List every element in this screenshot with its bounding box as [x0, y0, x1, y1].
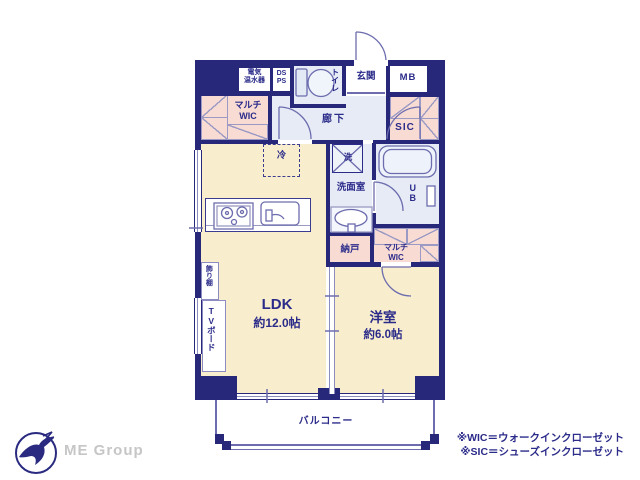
ps-line: PS [277, 78, 286, 85]
refrigerator-label: 冷 [263, 150, 300, 161]
ds-ps-label: DS PS [273, 70, 290, 87]
water-heater-line2: 温水器 [244, 77, 265, 84]
display-shelf-label: 飾り棚 [204, 265, 212, 286]
legend-notes: ※WIC＝ウォークインクローゼット ※SIC＝シューズインクローゼット [457, 431, 624, 459]
me-group-logo [12, 428, 60, 476]
toilet-icon [296, 69, 334, 97]
storage-label: 納戸 [330, 244, 370, 255]
legend-note-sic: ※SIC＝シューズインクローゼット [457, 445, 624, 459]
stove-icon [214, 203, 253, 229]
shoes-closet-label: SIC [388, 122, 422, 134]
western-room-label: 洋室 約6.0帖 [333, 310, 433, 343]
upper-wic-line2: WIC [239, 111, 257, 121]
upper-wic-label: マルチ WIC [228, 100, 268, 122]
bedroom-door-arc [382, 267, 411, 296]
water-heater-line1: 電気 [248, 69, 262, 76]
lower-wic-label: マルチ WIC [375, 243, 417, 262]
legend-note-wic: ※WIC＝ウォークインクローゼット [457, 431, 624, 445]
western-room-area: 約6.0帖 [364, 329, 403, 341]
western-room-name: 洋室 [370, 310, 397, 325]
fixtures-overlay [0, 0, 640, 480]
brand-text: ME Group [64, 442, 144, 459]
ldk-name: LDK [262, 296, 293, 313]
balcony-label: バルコニー [266, 416, 386, 428]
bathtub-icon [379, 146, 436, 177]
washroom-label: 洗面室 [330, 182, 372, 193]
bird-icon [19, 437, 54, 465]
entrance-door-arc [356, 32, 386, 60]
lower-wic-line2: WIC [388, 253, 404, 262]
entrance-label: 玄関 [346, 71, 386, 82]
vanity-sink-icon [331, 207, 372, 232]
washing-machine-label: 洗 [338, 152, 358, 162]
kitchen-sink-icon [261, 202, 299, 225]
ub-sink-icon [427, 186, 435, 206]
toilet-label: トイレ [330, 68, 340, 92]
floor-plan: 電気 温水器 DS PS トイレ 玄関 MB マルチ WIC 廊下 SIC 冷 … [0, 0, 640, 480]
lower-wic-line1: マルチ [384, 243, 408, 252]
logo-accent-stroke [43, 432, 54, 439]
tv-board-label: TVボード [206, 306, 216, 352]
upper-wic-line1: マルチ [234, 100, 261, 110]
ds-line: DS [277, 70, 287, 77]
hallway-label: 廊下 [306, 114, 362, 126]
meter-box-label: MB [390, 72, 426, 83]
unit-bath-label: UB [407, 183, 418, 203]
bath-door-arc [374, 182, 403, 211]
ldk-label: LDK 約12.0帖 [227, 296, 327, 332]
ldk-area: 約12.0帖 [253, 316, 300, 330]
water-heater-label: 電気 温水器 [239, 69, 270, 86]
